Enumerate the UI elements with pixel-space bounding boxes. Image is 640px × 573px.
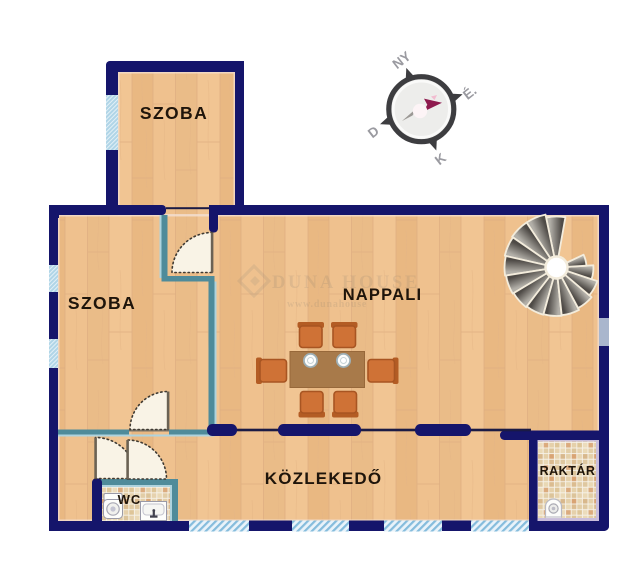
svg-text:SZOBA: SZOBA	[68, 293, 136, 313]
svg-text:K: K	[432, 150, 449, 168]
svg-text:É.: É.	[460, 83, 479, 103]
svg-text:NY: NY	[390, 48, 414, 71]
svg-text:RAKTÁR: RAKTÁR	[540, 463, 596, 478]
svg-text:NAPPALI: NAPPALI	[343, 286, 423, 304]
svg-text:KÖZLEKEDŐ: KÖZLEKEDŐ	[265, 469, 383, 488]
svg-text:D: D	[365, 123, 382, 141]
svg-text:SZOBA: SZOBA	[140, 103, 208, 123]
svg-text:WC: WC	[118, 492, 142, 507]
